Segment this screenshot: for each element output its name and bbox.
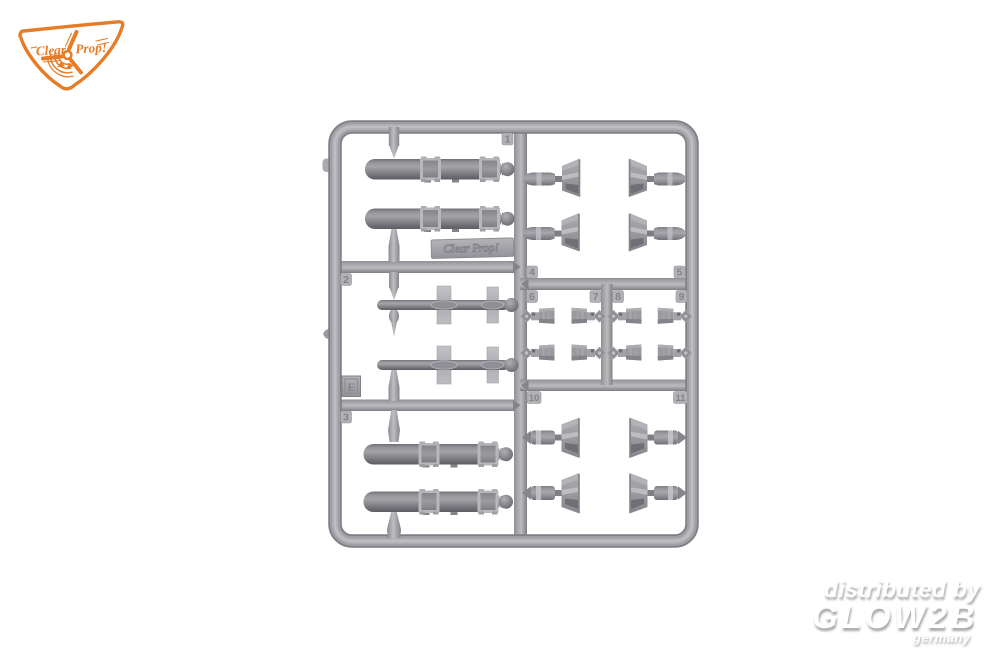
svg-text:2: 2 xyxy=(343,274,349,286)
svg-text:7: 7 xyxy=(593,291,599,303)
svg-text:Clear Prop!: Clear Prop! xyxy=(443,240,499,255)
svg-text:11: 11 xyxy=(675,393,686,404)
svg-text:Clear: Clear xyxy=(36,42,68,59)
svg-text:Prop!: Prop! xyxy=(75,40,107,57)
svg-text:3: 3 xyxy=(343,412,349,424)
svg-text:9: 9 xyxy=(679,291,685,303)
svg-text:10: 10 xyxy=(529,393,540,404)
svg-text:8: 8 xyxy=(615,291,621,303)
svg-text:1: 1 xyxy=(505,134,511,146)
svg-text:4: 4 xyxy=(529,267,535,279)
svg-text:5: 5 xyxy=(677,267,683,279)
svg-text:6: 6 xyxy=(529,291,535,303)
svg-text:E: E xyxy=(347,380,355,394)
